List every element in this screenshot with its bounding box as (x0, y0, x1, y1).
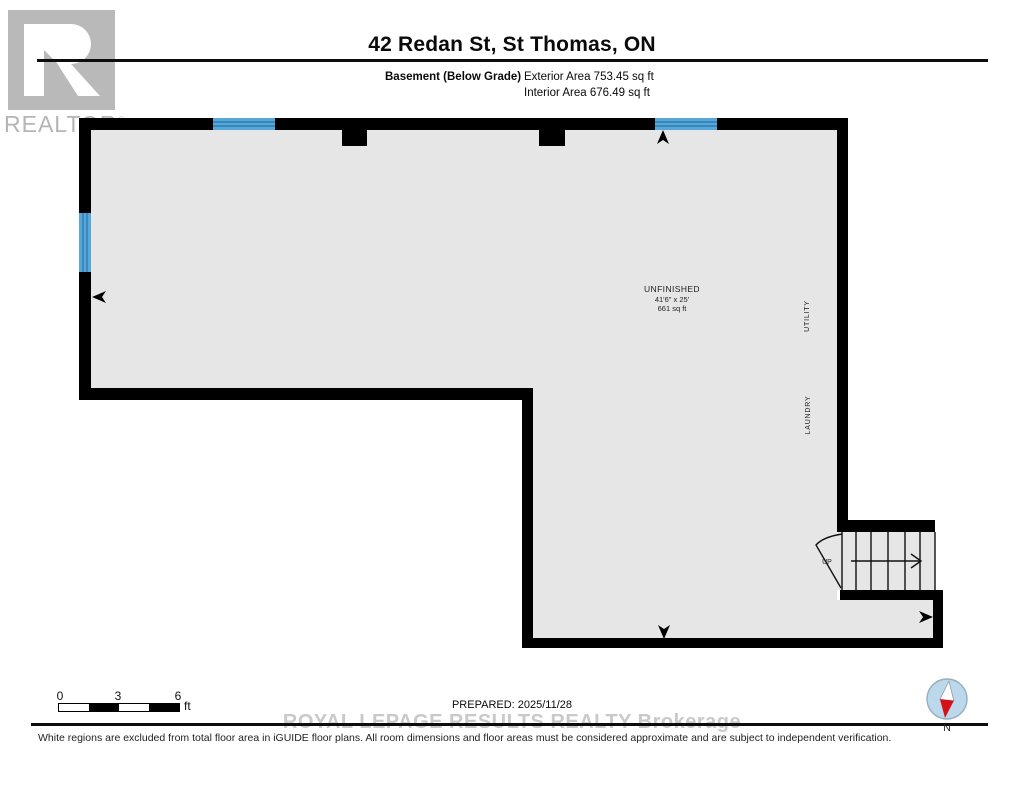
scale-segment (149, 704, 179, 711)
floor-area (91, 130, 935, 638)
footer-divider (31, 723, 988, 726)
scale-segment (89, 704, 119, 711)
wall-bottom-left-wing (79, 388, 533, 400)
utility-label: UTILITY (804, 300, 811, 332)
scale-segment (59, 704, 89, 711)
floor-plan-canvas: UP UNFINISHED 41'6" x 25' 661 sq ft UTIL… (0, 0, 1024, 791)
wall-bottom-right (933, 590, 943, 648)
room-area: 661 sq ft (658, 304, 688, 313)
column-1 (342, 130, 367, 146)
wall-below-stairs (840, 590, 943, 600)
column-2 (539, 130, 565, 146)
scale-bar (58, 703, 180, 712)
wall-inner-vertical (522, 388, 533, 648)
scale-tick-3: 3 (108, 689, 128, 703)
window-top-1 (213, 118, 275, 130)
wall-right (837, 118, 848, 532)
floorplan-page: { "header": { "title": "42 Redan St, St … (0, 0, 1024, 791)
room-dimensions: 41'6" x 25' (655, 295, 690, 304)
prepared-date: PREPARED: 2025/11/28 (362, 699, 662, 711)
wall-bottom (522, 638, 943, 648)
scale-unit-label: ft (184, 699, 191, 713)
room-name: UNFINISHED (644, 284, 700, 294)
stairs-up-label: UP (822, 559, 832, 566)
scale-tick-0: 0 (50, 689, 70, 703)
window-left (79, 213, 91, 272)
disclaimer-text: White regions are excluded from total fl… (38, 732, 891, 744)
scale-segment (119, 704, 149, 711)
wall-top (79, 118, 848, 130)
window-top-2 (655, 118, 717, 130)
wall-stairs-top (848, 520, 935, 532)
laundry-label: LAUNDRY (805, 396, 812, 435)
compass-north-label: N (943, 722, 951, 734)
